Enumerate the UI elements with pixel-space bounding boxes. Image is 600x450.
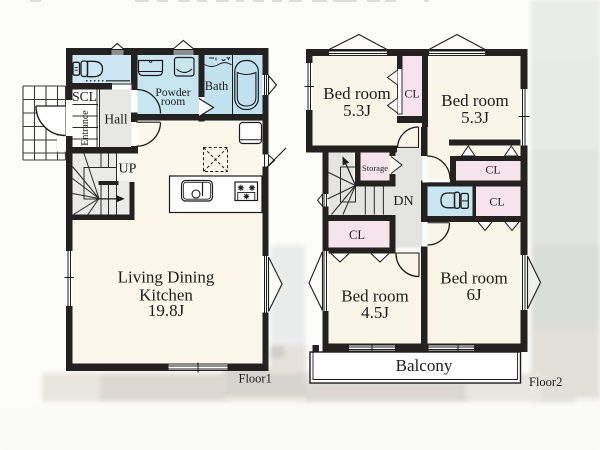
svg-text:5.3J: 5.3J (461, 108, 489, 127)
svg-text:6J: 6J (466, 285, 482, 304)
svg-text:UP: UP (119, 162, 137, 177)
svg-text:DN: DN (393, 194, 413, 209)
svg-text:room: room (161, 96, 185, 108)
svg-text:4.5J: 4.5J (361, 303, 389, 322)
svg-text:Balcony: Balcony (396, 356, 453, 375)
svg-text:Hall: Hall (104, 112, 127, 127)
svg-text:Floor1: Floor1 (239, 372, 272, 386)
svg-text:SCL: SCL (72, 89, 97, 104)
svg-text:CL: CL (349, 228, 365, 242)
svg-text:Entrance: Entrance (80, 110, 91, 146)
svg-text:Floor2: Floor2 (529, 375, 562, 389)
svg-text:CL: CL (404, 87, 419, 101)
svg-text:19.8J: 19.8J (148, 301, 185, 320)
svg-text:CL: CL (489, 195, 504, 209)
svg-text:Living Dining: Living Dining (118, 268, 215, 287)
svg-text:Bath: Bath (205, 79, 229, 93)
svg-text:CL: CL (485, 163, 500, 177)
svg-text:5.3J: 5.3J (343, 101, 371, 120)
svg-text:Storage: Storage (362, 163, 388, 173)
